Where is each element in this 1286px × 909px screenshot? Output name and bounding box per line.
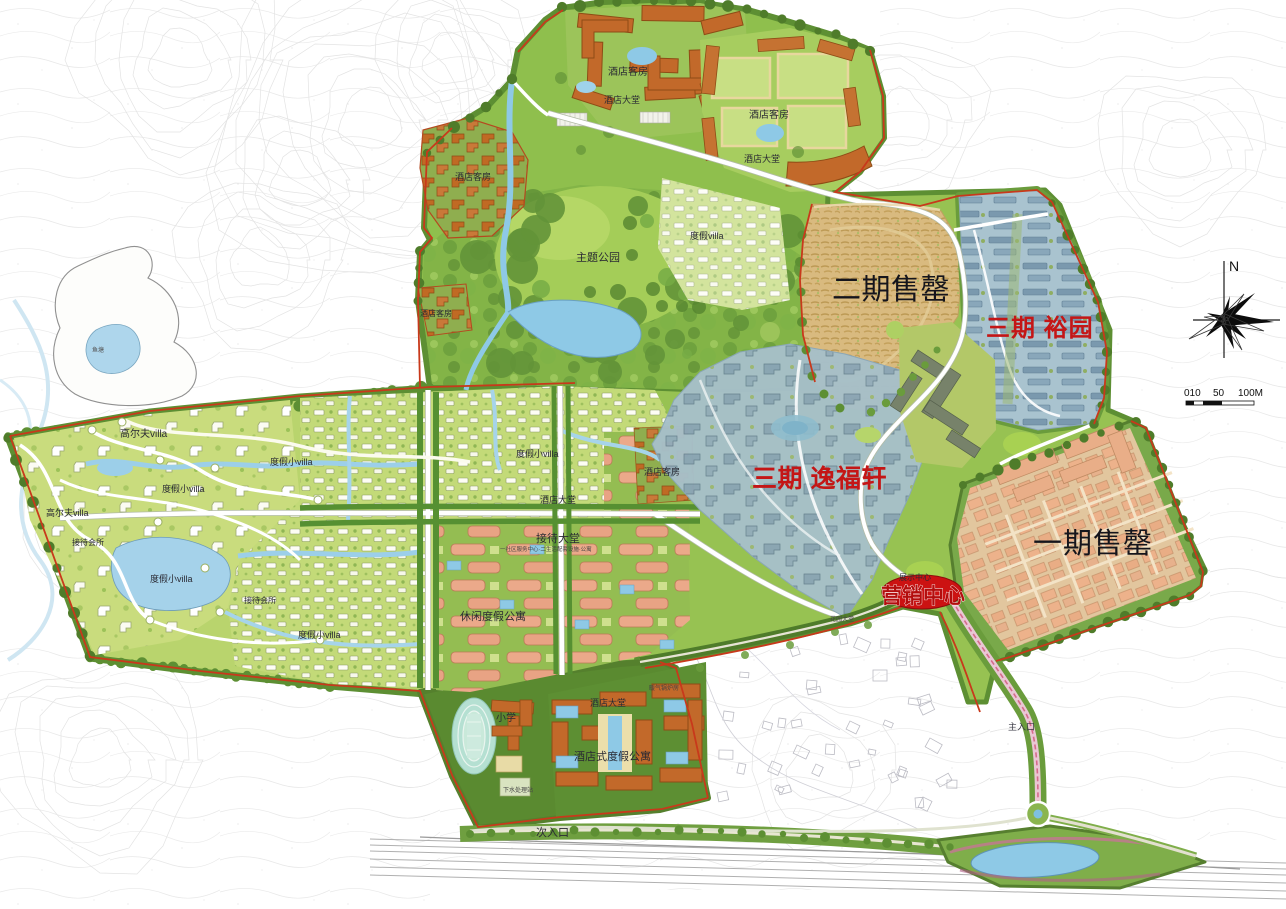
svg-text:度假小villa: 度假小villa (516, 448, 559, 459)
svg-text:一期售罄: 一期售罄 (1033, 527, 1153, 560)
svg-text:酒店客房: 酒店客房 (455, 171, 491, 182)
svg-text:下水处理站: 下水处理站 (503, 786, 533, 794)
svg-text:度假小villa: 度假小villa (150, 573, 193, 584)
svg-text:小学: 小学 (496, 711, 516, 724)
svg-text:度假小villa: 度假小villa (270, 456, 313, 467)
svg-text:酒店式度假公寓: 酒店式度假公寓 (574, 749, 651, 763)
svg-text:营销中心: 营销中心 (881, 584, 965, 608)
svg-text:休闲度假公寓: 休闲度假公寓 (460, 609, 526, 623)
svg-text:接待会所: 接待会所 (244, 595, 276, 605)
svg-text:次入口: 次入口 (536, 825, 569, 839)
svg-text:三期 裕园: 三期 裕园 (986, 314, 1094, 342)
svg-text:主题公园: 主题公园 (576, 251, 620, 264)
svg-text:酒店大堂: 酒店大堂 (540, 494, 576, 505)
svg-text:高尔夫villa: 高尔夫villa (120, 427, 168, 440)
svg-text:酒店客房: 酒店客房 (420, 308, 452, 318)
svg-text:一社区服务中心·二生活配套设施·公寓: 一社区服务中心·二生活配套设施·公寓 (500, 545, 592, 553)
svg-text:酒店大堂: 酒店大堂 (604, 94, 640, 105)
svg-text:花园大堂: 花园大堂 (830, 615, 854, 623)
svg-text:010: 010 (1184, 388, 1201, 399)
svg-text:50: 50 (1213, 388, 1225, 399)
svg-text:酒店客房: 酒店客房 (749, 108, 789, 121)
svg-text:酒店大堂: 酒店大堂 (590, 697, 626, 708)
svg-text:展示中心: 展示中心 (899, 572, 931, 582)
svg-text:接待会所: 接待会所 (72, 537, 104, 547)
svg-text:酒店大堂: 酒店大堂 (744, 153, 780, 164)
svg-text:酒店客房: 酒店客房 (608, 65, 648, 78)
svg-text:三期 逸福轩: 三期 逸福轩 (752, 464, 887, 493)
svg-text:接待大堂: 接待大堂 (536, 531, 580, 545)
svg-text:度假小villa: 度假小villa (162, 483, 205, 494)
svg-text:鱼塘: 鱼塘 (92, 346, 104, 354)
svg-text:暖气锅炉房: 暖气锅炉房 (649, 684, 679, 692)
svg-text:高尔夫villa: 高尔夫villa (46, 507, 89, 518)
svg-text:度假小villa: 度假小villa (298, 629, 341, 640)
svg-text:度假villa: 度假villa (690, 230, 724, 241)
svg-text:主入口: 主入口 (1008, 721, 1035, 732)
svg-text:二期售罄: 二期售罄 (832, 273, 950, 306)
svg-text:酒店客房: 酒店客房 (644, 466, 680, 477)
svg-text:N: N (1229, 258, 1239, 274)
svg-text:100M: 100M (1238, 388, 1263, 399)
